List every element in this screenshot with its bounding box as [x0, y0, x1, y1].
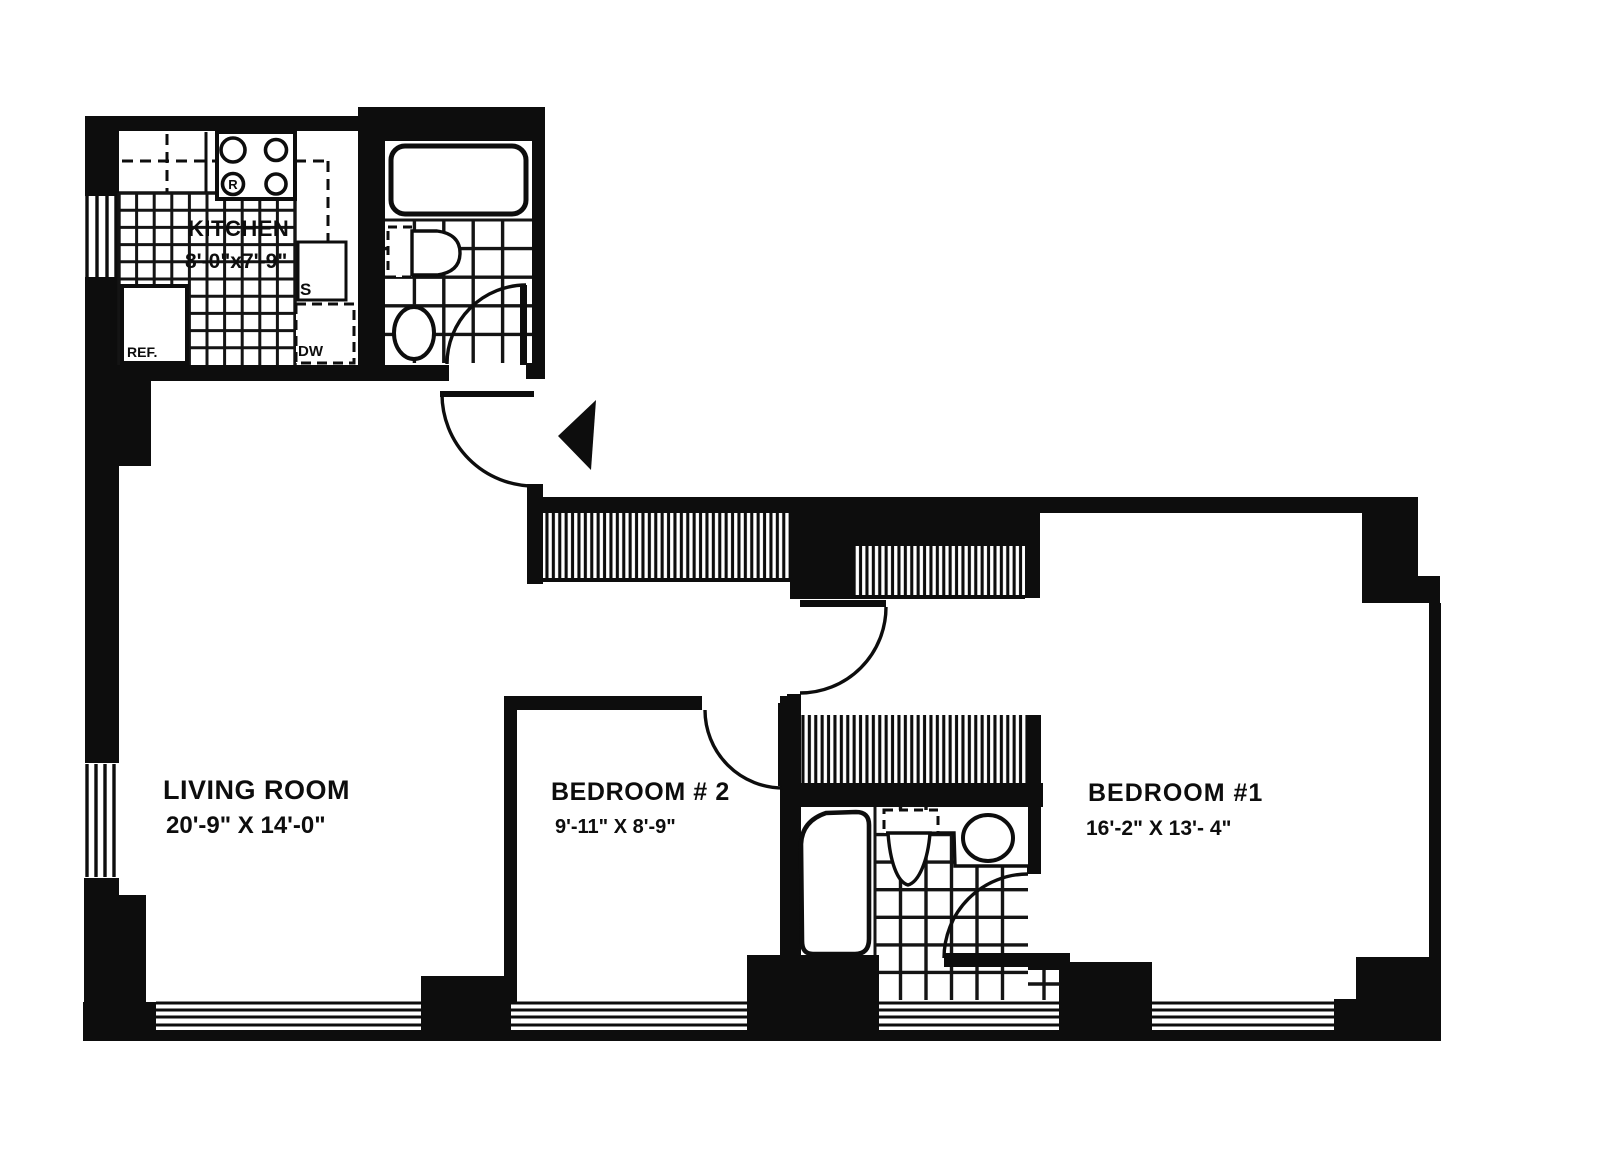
- svg-text:REF.: REF.: [127, 344, 157, 360]
- svg-text:DW: DW: [298, 343, 324, 360]
- svg-text:16'-2" X 13'- 4": 16'-2" X 13'- 4": [1086, 817, 1231, 840]
- svg-text:9'-11" X 8'-9": 9'-11" X 8'-9": [555, 816, 676, 838]
- svg-text:LIVING ROOM: LIVING ROOM: [163, 775, 350, 805]
- svg-text:BEDROOM #1: BEDROOM #1: [1088, 779, 1263, 807]
- svg-text:KITCHEN: KITCHEN: [188, 216, 289, 241]
- svg-text:R: R: [228, 177, 238, 192]
- svg-text:8'-0"x7'-9": 8'-0"x7'-9": [185, 250, 287, 273]
- svg-text:BEDROOM # 2: BEDROOM # 2: [551, 778, 730, 806]
- svg-text:S: S: [300, 280, 311, 299]
- svg-text:20'-9" X 14'-0": 20'-9" X 14'-0": [166, 812, 326, 839]
